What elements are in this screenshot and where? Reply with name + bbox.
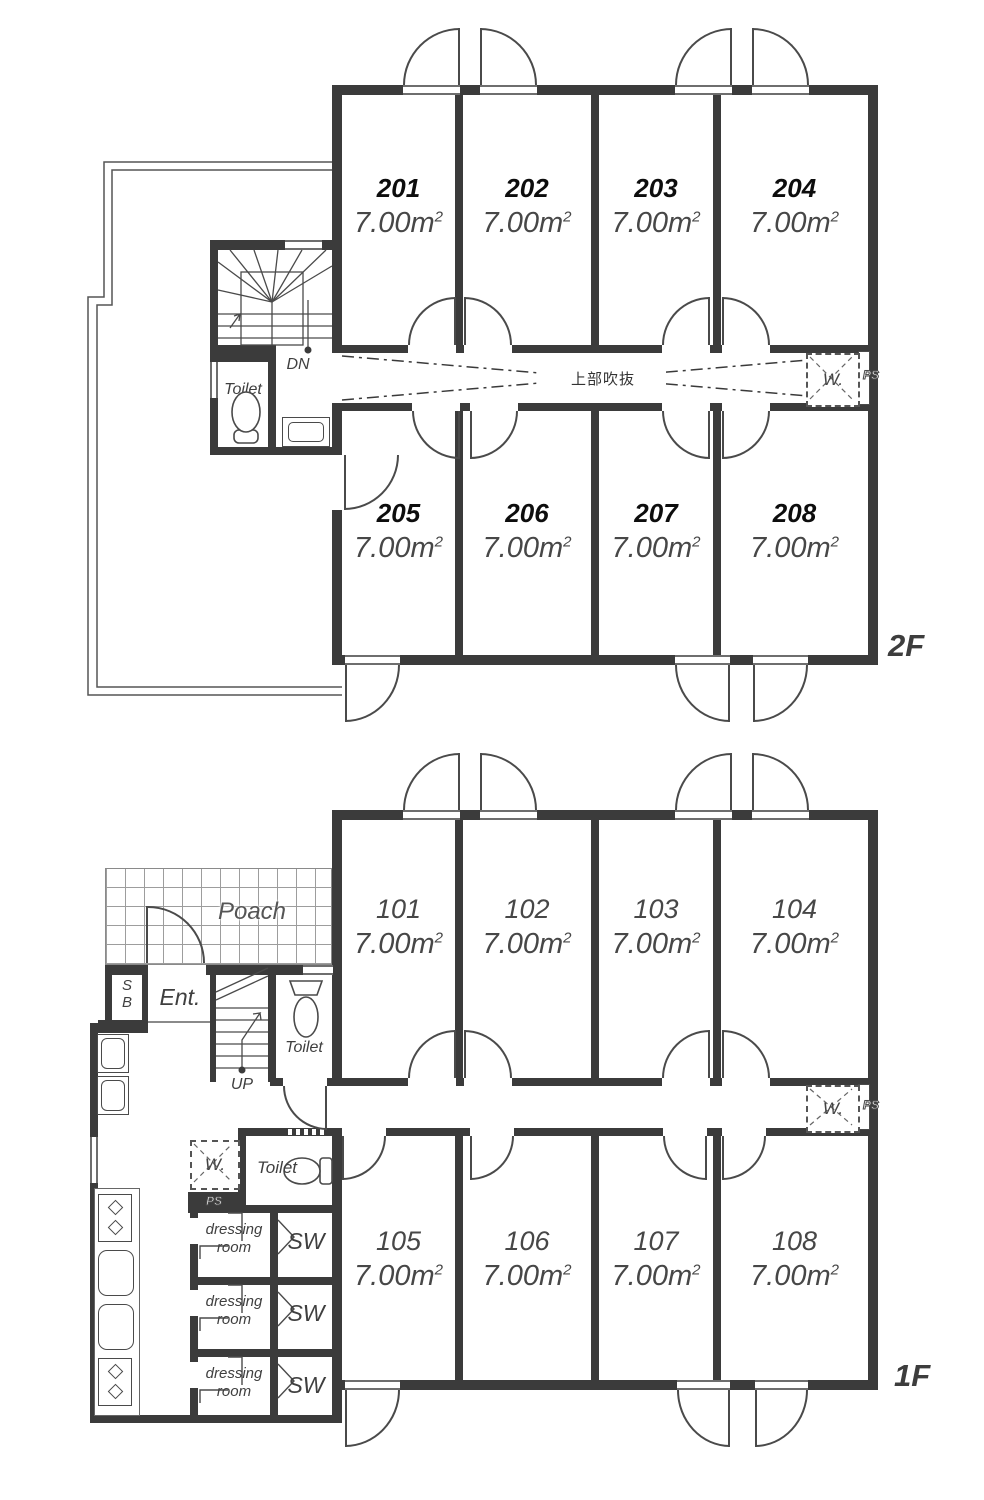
window-gap [90,1137,98,1183]
room-202-label: 202 7.00m2 [463,172,591,241]
room-area: 7.00m2 [463,1258,591,1294]
window-arc [752,753,809,810]
door-gap [412,403,460,411]
window-leaf [345,1390,347,1447]
window-arc [345,1390,400,1447]
room-206-label: 206 7.00m2 [463,497,591,566]
dressing-room-label: dressing room [196,1293,272,1329]
door-leaf [325,1086,327,1130]
dressing-line1: dressing [196,1221,272,1239]
room-area: 7.00m2 [721,205,868,241]
window-gap [753,655,808,665]
door-leaf [708,1030,710,1078]
door-leaf [708,297,710,345]
sqm-sup: 2 [435,208,443,225]
window-gap [480,85,537,95]
room-number: 101 [342,893,455,926]
shoebox-label: S B [112,977,142,1011]
sqm-sup: 2 [563,533,571,550]
window-gap [303,965,333,975]
toilet-fixture-2f [218,362,268,447]
door-gap [470,1128,514,1136]
window-leaf [728,1390,730,1447]
dressing-room-label: dressing room [196,1221,272,1257]
dressing-line2: room [196,1239,272,1257]
room-area: 7.00m2 [599,530,713,566]
window-gap [752,810,809,820]
window-arc [755,1390,808,1447]
room-number: 107 [599,1225,713,1258]
basin-2f [288,422,324,442]
sqm-sup: 2 [563,208,571,225]
room-107-label: 107 7.00m2 [599,1225,713,1294]
window-leaf [480,753,482,810]
room-area: 7.00m2 [721,926,868,962]
window-gap [403,810,460,820]
room-area: 7.00m2 [342,1258,455,1294]
window-arc [677,1390,730,1447]
shoebox-letter-b: B [112,994,142,1011]
door-gap [722,403,770,411]
room-number: 106 [463,1225,591,1258]
room-area: 7.00m2 [463,205,591,241]
room-number: 104 [721,893,868,926]
room-area: 7.00m2 [721,1258,868,1294]
porch-label: Poach [192,898,312,926]
room-205-label: 205 7.00m2 [342,497,455,566]
window-leaf [752,753,754,810]
door-gap [662,345,710,353]
sqm-sup: 2 [692,533,700,550]
washing-machine-drum [101,1038,125,1069]
window-arc [403,753,460,810]
window-leaf [730,28,732,85]
room-203-label: 203 7.00m2 [599,172,713,241]
toilet-label-1f-upper: Toilet [276,1039,332,1057]
room-108-label: 108 7.00m2 [721,1225,868,1294]
sqm-sup: 2 [831,929,839,946]
window-arc [345,665,400,722]
dressing-room-label: dressing room [196,1365,272,1401]
pipe-space-label-1f: PS [863,1098,879,1112]
window-leaf [730,753,732,810]
washer-box-2f: W. [806,353,860,407]
window-leaf [728,665,730,722]
washer-box-1f-corridor: W. [806,1085,860,1133]
sqm-sup: 2 [563,1261,571,1278]
door-gap [464,345,512,353]
floor-plan-canvas: 上部吹抜 W. PS DN Toilet 201 7. [0,0,984,1500]
sqm-sup: 2 [435,1261,443,1278]
room-number: 103 [599,893,713,926]
sqm-sup: 2 [831,1261,839,1278]
window-gap [755,1380,808,1390]
room-208-label: 208 7.00m2 [721,497,868,566]
door-leaf [722,1136,724,1180]
window-gap [675,655,730,665]
window-gap [345,655,400,665]
door-gap [662,403,710,411]
door-gap [342,1128,386,1136]
door-gap [722,345,770,353]
window-arc [752,28,809,85]
door-gap [464,1078,512,1086]
stairs-dn-label: DN [274,356,322,374]
void-note: 上部吹抜 [540,368,666,389]
door-leaf [470,1136,472,1180]
door-gap [662,1078,710,1086]
dressing-line2: room [196,1383,272,1401]
door-leaf [722,411,724,459]
window-arc [480,753,537,810]
window-leaf [345,665,347,722]
dressing-line1: dressing [196,1293,272,1311]
room-number: 105 [342,1225,455,1258]
sw-label: SW [278,1372,334,1399]
room-area: 7.00m2 [342,926,455,962]
room-area: 7.00m2 [342,530,455,566]
door-leaf [722,297,724,345]
door-leaf [454,297,456,345]
window-leaf [458,28,460,85]
window-gap [345,1380,400,1390]
toilet-label-1f-lower: Toilet [246,1158,308,1178]
window-gap [677,1380,730,1390]
room-103-label: 103 7.00m2 [599,893,713,962]
door-leaf [458,411,460,459]
sink [98,1304,134,1350]
window-gap [403,85,460,95]
sqm-sup: 2 [563,929,571,946]
room-area: 7.00m2 [342,205,455,241]
washer-box-1f-hall: W. [190,1140,240,1190]
corridor-opening-1f [332,1086,342,1128]
entrance-label: Ent. [148,984,212,1011]
pipe-space-label-2f: PS [863,368,879,382]
door-gap [408,345,456,353]
room-106-label: 106 7.00m2 [463,1225,591,1294]
room-number: 206 [463,497,591,530]
room-207-label: 207 7.00m2 [599,497,713,566]
entrance-door-gap [148,965,206,975]
room-101-label: 101 7.00m2 [342,893,455,962]
door-leaf [708,411,710,459]
window-leaf [755,1390,757,1447]
window-leaf [753,665,755,722]
window-arc [403,28,460,85]
room-204-label: 204 7.00m2 [721,172,868,241]
room-area: 7.00m2 [599,926,713,962]
door-leaf [705,1136,707,1180]
sqm-sup: 2 [435,533,443,550]
door-gap [408,1078,456,1086]
door-gap [722,1128,766,1136]
door-leaf [146,906,148,963]
window-gap [480,810,537,820]
floor-label-2f: 2F [888,628,924,664]
washer-label: W. [823,1099,843,1119]
room-number: 202 [463,172,591,205]
dressing-line1: dressing [196,1365,272,1383]
balcony-door-gap-2f [332,455,342,510]
wall-segment [105,965,112,1023]
washer-label: W. [205,1155,225,1175]
door-gap [283,1078,327,1086]
room-area: 7.00m2 [599,205,713,241]
entrance-step-line [148,1021,210,1023]
window-leaf [752,28,754,85]
room-number: 207 [599,497,713,530]
window-gap [675,85,732,95]
room-area: 7.00m2 [463,926,591,962]
sqm-sup: 2 [692,929,700,946]
shoebox-letter-s: S [112,977,142,994]
door-leaf [464,297,466,345]
room-number: 108 [721,1225,868,1258]
sqm-sup: 2 [692,208,700,225]
door-leaf [342,1136,344,1180]
room-area: 7.00m2 [463,530,591,566]
sw-label: SW [278,1300,334,1327]
room-201-label: 201 7.00m2 [342,172,455,241]
room-area: 7.00m2 [599,1258,713,1294]
door-leaf [470,411,472,459]
window-gap [675,810,732,820]
door-leaf [454,1030,456,1078]
window-arc [675,665,730,722]
room-number: 204 [721,172,868,205]
corridor-1f [342,1086,854,1128]
washing-machine-drum [101,1080,125,1111]
door-arc [283,1086,327,1130]
door-leaf [722,1030,724,1078]
door-leaf [464,1030,466,1078]
sink [98,1250,134,1296]
stairs-up-label: UP [214,1076,270,1094]
window-arc [480,28,537,85]
washer-label: W. [823,370,843,390]
window-arc [753,665,808,722]
dressing-line2: room [196,1311,272,1329]
window-arc [675,28,732,85]
room-104-label: 104 7.00m2 [721,893,868,962]
room-number: 203 [599,172,713,205]
room-number: 201 [342,172,455,205]
wall-segment [98,1020,148,1033]
sqm-sup: 2 [692,1261,700,1278]
room-105-label: 105 7.00m2 [342,1225,455,1294]
room-number: 102 [463,893,591,926]
window-arc [675,753,732,810]
room-102-label: 102 7.00m2 [463,893,591,962]
door-gap [470,403,518,411]
sqm-sup: 2 [435,929,443,946]
window-leaf [480,28,482,85]
room-area: 7.00m2 [721,530,868,566]
vent-window [288,1129,328,1135]
room-number: 208 [721,497,868,530]
door-gap [722,1078,770,1086]
sw-label: SW [278,1228,334,1255]
toilet-fixture-1f-upper [276,975,332,1078]
window-gap [752,85,809,95]
sqm-sup: 2 [831,208,839,225]
room-number: 205 [342,497,455,530]
door-gap [663,1128,707,1136]
floor-label-1f: 1F [894,1358,930,1394]
window-leaf [458,753,460,810]
sqm-sup: 2 [831,533,839,550]
